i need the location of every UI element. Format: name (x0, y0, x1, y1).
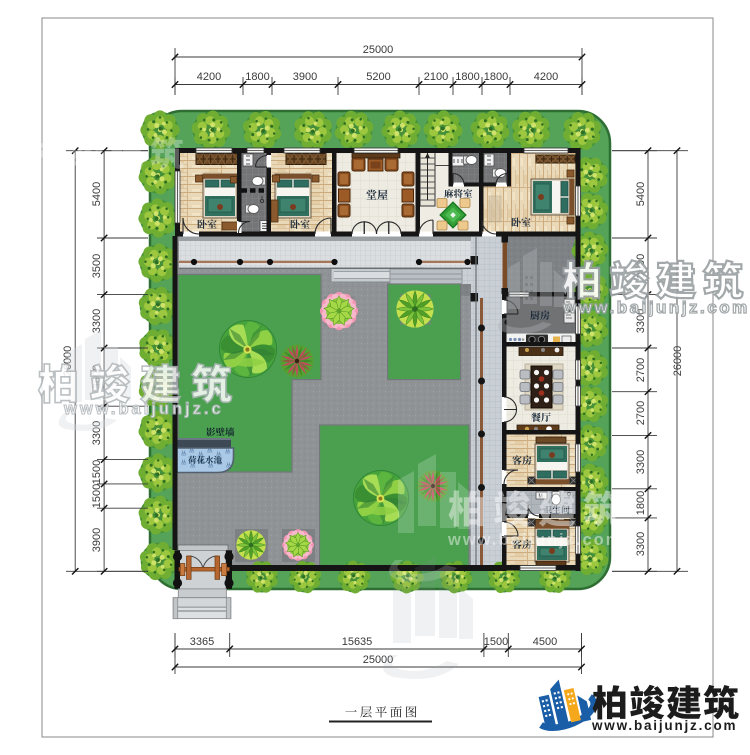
svg-text:5400: 5400 (91, 182, 103, 206)
svg-text:3365: 3365 (190, 636, 214, 648)
svg-text:4500: 4500 (533, 636, 557, 648)
svg-text:www.baijunjz.com: www.baijunjz.com (591, 718, 737, 733)
svg-text:1500: 1500 (484, 636, 508, 648)
svg-text:1500: 1500 (91, 460, 103, 484)
svg-text:www.baijunjz.com: www.baijunjz.com (562, 298, 750, 317)
svg-text:3300: 3300 (635, 532, 647, 556)
svg-text:1800: 1800 (455, 71, 479, 83)
svg-text:1500: 1500 (91, 484, 103, 508)
svg-text:1800: 1800 (484, 71, 508, 83)
svg-text:www.baijunjz.c: www.baijunjz.c (63, 400, 224, 418)
svg-text:2100: 2100 (424, 71, 448, 83)
svg-text:26000: 26000 (672, 346, 684, 377)
svg-text:3300: 3300 (91, 309, 103, 333)
svg-text:1800: 1800 (635, 491, 647, 515)
svg-text:3900: 3900 (293, 71, 317, 83)
svg-text:www.baijunjz.com: www.baijunjz.com (447, 531, 622, 549)
svg-text:5200: 5200 (366, 71, 390, 83)
svg-text:3300: 3300 (635, 450, 647, 474)
svg-text:1800: 1800 (245, 71, 269, 83)
svg-text:2700: 2700 (635, 358, 647, 382)
svg-text:2700: 2700 (635, 401, 647, 425)
svg-text:3900: 3900 (91, 528, 103, 552)
svg-text:3500: 3500 (91, 254, 103, 278)
svg-text:5400: 5400 (635, 182, 647, 206)
svg-text:4200: 4200 (197, 71, 221, 83)
svg-text:4200: 4200 (534, 71, 558, 83)
svg-text:25000: 25000 (363, 44, 394, 56)
svg-text:15635: 15635 (342, 636, 373, 648)
